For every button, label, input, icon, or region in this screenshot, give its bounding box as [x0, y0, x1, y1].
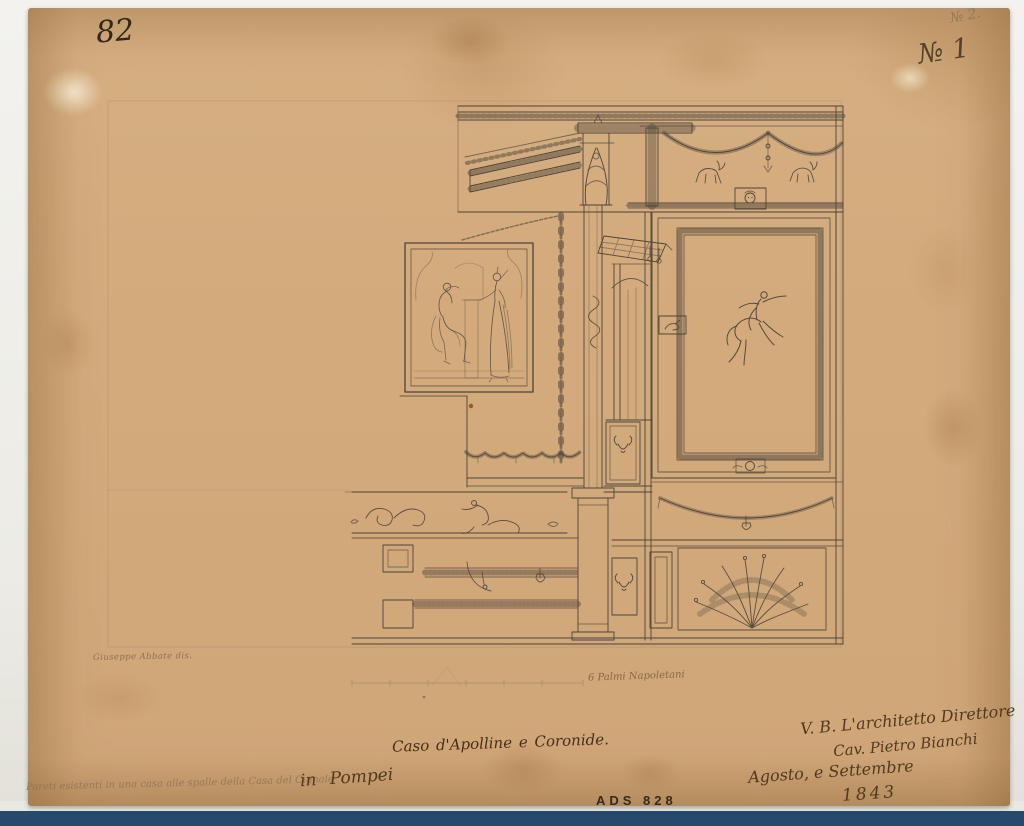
scanned-sheet: 82 № 2. № 1 Giuseppe Abbate dis. 6 Palmi…: [0, 0, 1024, 826]
blue-backing-strip: [0, 811, 1024, 826]
stain: [430, 16, 510, 66]
stain: [908, 223, 978, 318]
stain: [658, 30, 768, 90]
paper-sheet: [28, 8, 1010, 806]
artist-signature: Giuseppe Abbate dis.: [93, 651, 193, 663]
catalog-stamp: ADS 828: [596, 793, 677, 808]
stain: [923, 388, 983, 468]
page-number: 82: [95, 12, 136, 50]
stain: [40, 308, 95, 378]
stain: [73, 673, 163, 723]
stain: [623, 753, 678, 791]
light-spot: [43, 68, 103, 116]
approval-note-year: 1843: [841, 782, 898, 806]
